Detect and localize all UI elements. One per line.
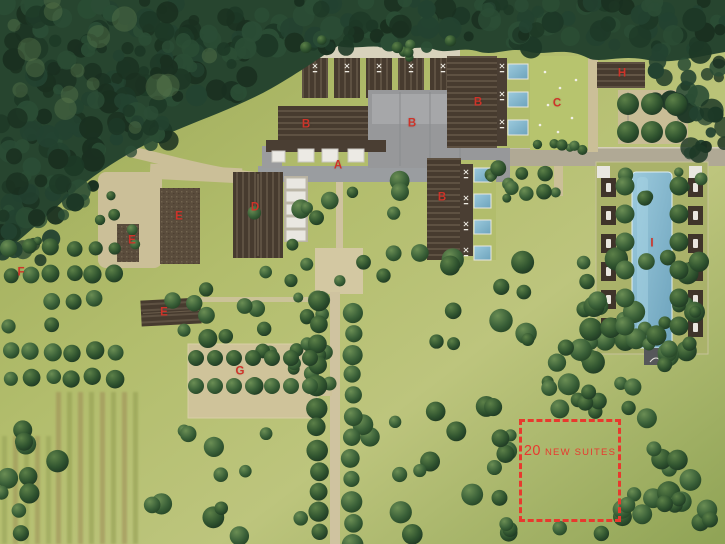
building-label-b-northeast: B — [474, 97, 482, 109]
lawn-label-c: C — [553, 98, 561, 110]
orchard-label-f: F — [17, 267, 24, 279]
building-label-b-center: B — [408, 118, 416, 130]
building-b-east — [427, 158, 461, 260]
plunge-pool — [508, 64, 528, 79]
building-b-northeast — [447, 56, 497, 148]
new-suites-label: 20NEW SUITES — [522, 442, 618, 460]
building-label-d: D — [251, 202, 259, 214]
tree-allee-path — [330, 292, 340, 544]
building-label-a: A — [334, 160, 342, 172]
building-label-b-east: B — [438, 192, 446, 204]
new-suites-area: 20NEW SUITES — [519, 419, 621, 522]
building-e-north — [160, 188, 200, 264]
building-label-b-west: B — [302, 119, 310, 131]
building-label-e-barn: E — [160, 307, 168, 319]
building-label-e-west: E — [128, 235, 136, 247]
courtyard-path — [336, 182, 343, 252]
building-label-h: H — [618, 68, 626, 80]
pool-court-label-i: I — [650, 238, 653, 250]
building-label-e-north: E — [175, 211, 183, 223]
new-suites-count: 20 — [524, 443, 541, 459]
site-plan: A B B B B C D E E E F G H I 20NEW SUITES — [0, 0, 725, 544]
plaza — [315, 248, 363, 294]
orchard-label-g: G — [236, 366, 245, 378]
